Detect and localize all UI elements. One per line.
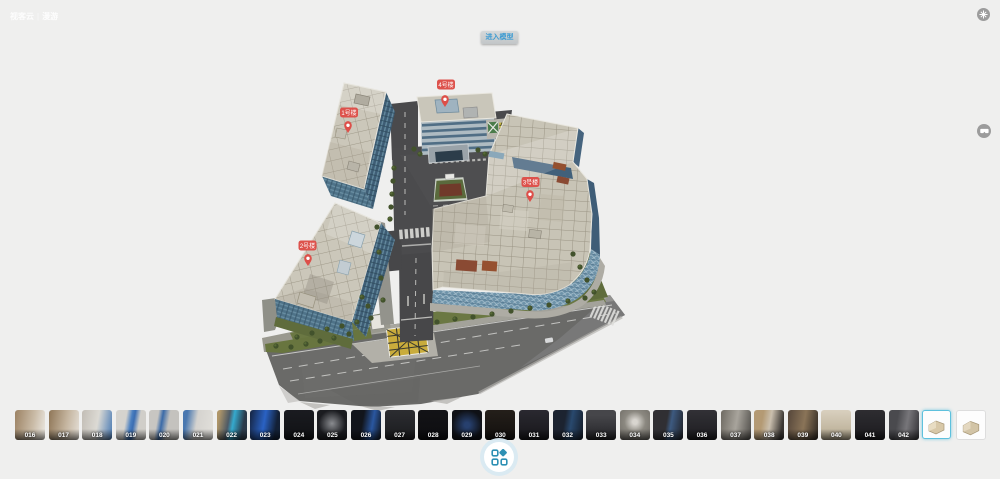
svg-text:4号楼: 4号楼 [438,81,453,89]
svg-text:3号楼: 3号楼 [523,178,538,186]
svg-text:2号楼: 2号楼 [300,242,315,250]
svg-text:1号楼: 1号楼 [341,109,356,117]
